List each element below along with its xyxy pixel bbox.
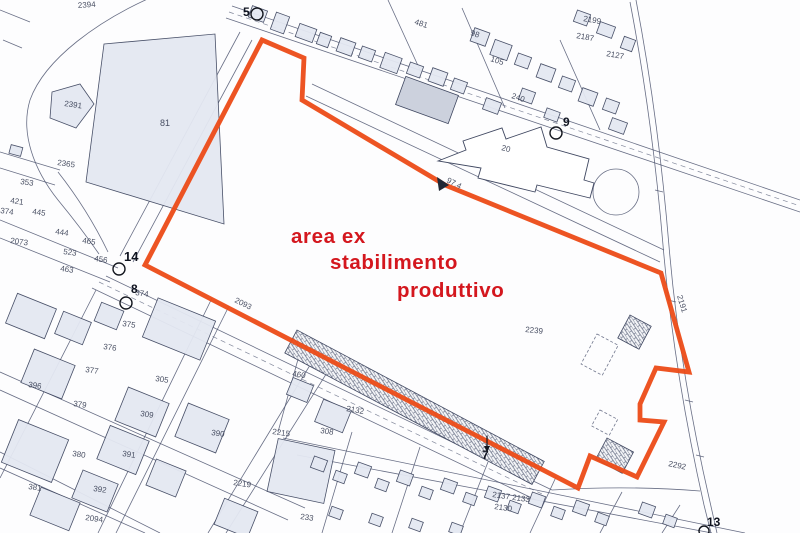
- dashed-structure: [581, 334, 618, 375]
- annotation-line-1: area ex: [291, 225, 366, 248]
- site-annotation-text: area ex stabilimento produttivo: [291, 225, 504, 302]
- parcel-number-label: 2394: [78, 0, 97, 10]
- dashed-structure-small: [592, 410, 618, 435]
- parcel-number-label: 2365: [57, 158, 76, 169]
- parcel-number-label: 463: [60, 264, 75, 275]
- survey-point-circle: [120, 297, 132, 309]
- annotation-line-2: stabilimento: [330, 251, 458, 274]
- parcel-number-label: 465: [82, 236, 97, 247]
- hatched-structure-ne: [618, 315, 651, 349]
- survey-point-circle: [550, 127, 562, 139]
- parcel-number-label: 377: [85, 365, 100, 376]
- cadastral-map-screenshot: 2394239181236535342137444544446520735234…: [0, 0, 800, 533]
- parcel-number-label: 391: [122, 449, 137, 460]
- parcel-number-label: 421: [10, 196, 25, 207]
- parcel-number-label: 2187: [576, 31, 596, 43]
- parcel-number-label: 374: [0, 206, 15, 217]
- survey-point-number: 8: [131, 282, 138, 296]
- parcel-number-label: 2191: [675, 294, 689, 314]
- parcel-number-label: 2215: [272, 427, 291, 438]
- parcel-number-label: 445: [32, 207, 47, 218]
- parcel-number-label: 2130: [494, 502, 513, 513]
- parcel-number-label: 233: [300, 512, 315, 523]
- factory-building-outline: [438, 127, 594, 198]
- circular-tank: [593, 169, 639, 215]
- gray-building: [396, 76, 459, 123]
- annotation-line-3: produttivo: [397, 279, 504, 302]
- parcel-number-label: 375: [122, 319, 137, 330]
- survey-point-number: 13: [707, 515, 721, 529]
- parcel-number-label: 390: [211, 428, 226, 439]
- parcel-number-label: 379: [73, 399, 88, 410]
- parcel-number-label: 2127: [606, 49, 626, 61]
- parcel-number-label: 381: [28, 482, 43, 493]
- parcel-number-label: 81: [160, 118, 170, 128]
- survey-point-number: 14: [124, 249, 139, 264]
- parcel-number-label: 305: [155, 374, 170, 385]
- parcel-number-label: 392: [93, 484, 108, 495]
- parcel-number-label: 2239: [525, 325, 544, 336]
- parcel-number-label: 2094: [85, 513, 104, 524]
- parcel-number-label: 444: [55, 227, 70, 238]
- parcel-number-label: 308: [320, 426, 335, 437]
- parcel-number-label: 456: [94, 254, 109, 265]
- parcel-number-label: 353: [20, 177, 35, 188]
- parcel-number-label: 2073: [10, 236, 29, 247]
- parcel-number-label: 396: [28, 380, 43, 391]
- survey-point-number: 5: [243, 5, 250, 19]
- parcel-number-label: 380: [72, 449, 87, 460]
- survey-point-circle: [113, 263, 125, 275]
- parcel-number-label: 2292: [668, 459, 688, 472]
- parcel-number-label: 523: [63, 247, 78, 258]
- survey-point-number: 9: [563, 115, 570, 129]
- bottom-left-buildings: [1, 293, 351, 533]
- top-strip-buildings: [248, 6, 635, 135]
- survey-point-number: 7: [482, 448, 489, 462]
- parcel-number-label: 309: [140, 409, 155, 420]
- parcel-number-label: 376: [103, 342, 118, 353]
- cadastral-map: 2394239181236535342137444544446520735234…: [0, 0, 800, 533]
- large-parcel-81: [86, 34, 224, 224]
- parcel-number-label: 481: [413, 17, 429, 30]
